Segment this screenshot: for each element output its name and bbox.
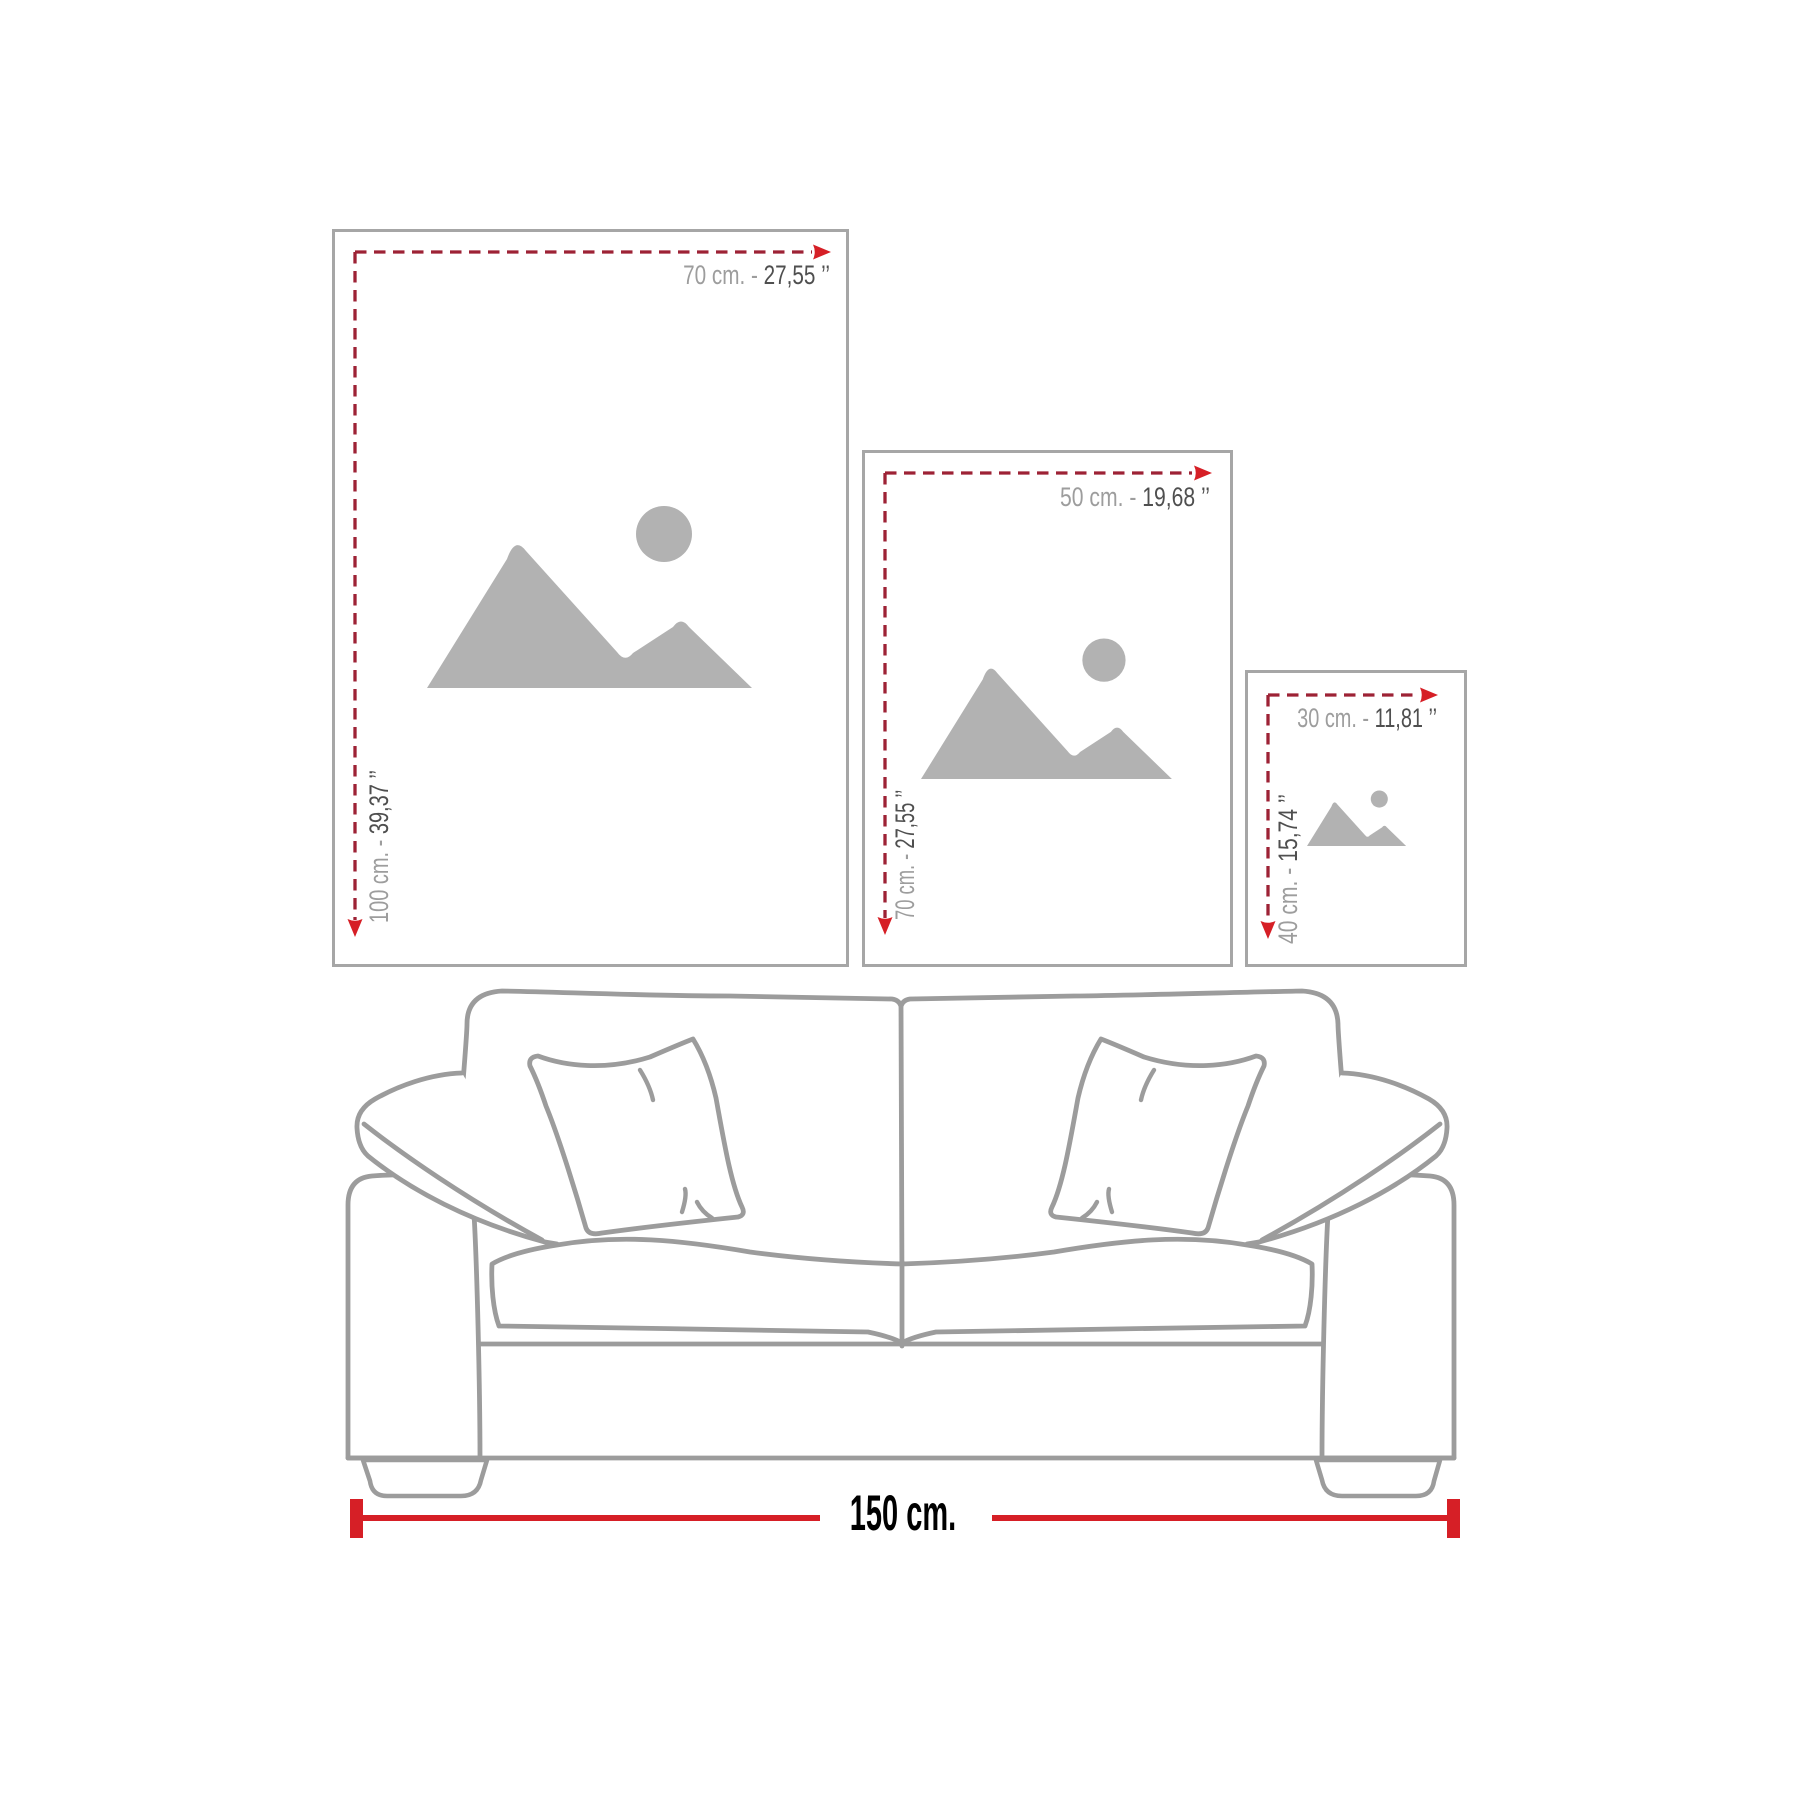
svg-text:30 cm. - 11,81 ’’: 30 cm. - 11,81 ’’ <box>1297 704 1437 734</box>
svg-text:50 cm. - 19,68 ’’: 50 cm. - 19,68 ’’ <box>1060 483 1210 513</box>
svg-text:40 cm. - 15,74 ’’: 40 cm. - 15,74 ’’ <box>1274 794 1304 944</box>
svg-text:70 cm. - 27,55 ’’: 70 cm. - 27,55 ’’ <box>683 260 830 290</box>
svg-text:100 cm. - 39,37 ’’: 100 cm. - 39,37 ’’ <box>364 770 395 923</box>
svg-text:150 cm.: 150 cm. <box>850 1485 956 1541</box>
svg-text:70 cm. - 27,55 ’’: 70 cm. - 27,55 ’’ <box>889 790 919 920</box>
